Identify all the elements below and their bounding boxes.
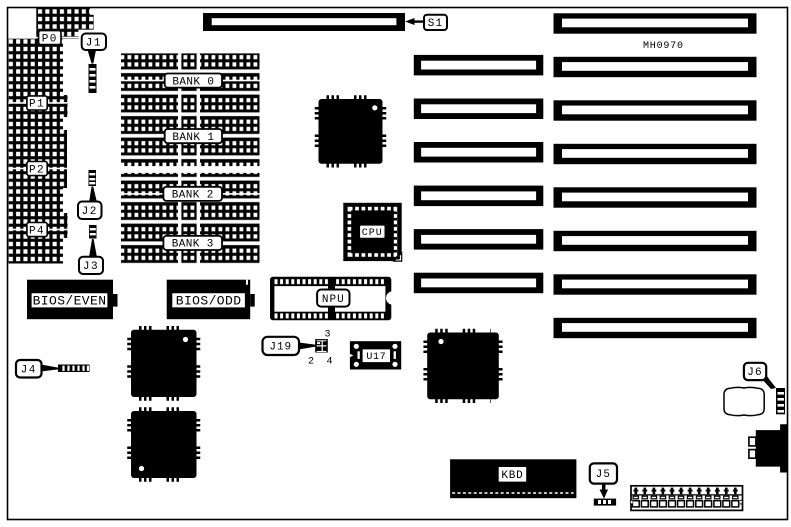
svg-text:P2: P2 [29,164,45,176]
svg-text:3: 3 [325,330,331,341]
svg-text:BANK 1: BANK 1 [172,132,214,144]
svg-text:J19: J19 [269,342,292,354]
svg-text:P0: P0 [42,33,58,45]
svg-text:NPU: NPU [322,294,345,306]
svg-text:KBD: KBD [501,470,523,482]
svg-text:P4: P4 [29,225,45,237]
svg-text:BIOS/EVEN: BIOS/EVEN [33,294,107,309]
svg-text:BANK 2: BANK 2 [172,190,214,202]
svg-text:U17: U17 [366,352,386,363]
svg-text:BANK 0: BANK 0 [172,76,214,88]
svg-text:2: 2 [308,357,314,368]
svg-text:BANK 3: BANK 3 [172,239,214,251]
svg-text:J5: J5 [596,469,612,481]
svg-text:BIOS/ODD: BIOS/ODD [176,294,242,309]
svg-text:J6: J6 [747,367,763,379]
svg-text:MH0970: MH0970 [643,41,684,52]
svg-text:4: 4 [327,357,333,368]
svg-text:P1: P1 [29,99,45,111]
svg-text:J2: J2 [82,206,98,218]
svg-text:J4: J4 [21,365,37,377]
svg-text:J3: J3 [83,261,99,273]
svg-text:CPU: CPU [362,228,383,239]
svg-text:J1: J1 [86,38,102,50]
svg-text:S1: S1 [428,18,444,30]
